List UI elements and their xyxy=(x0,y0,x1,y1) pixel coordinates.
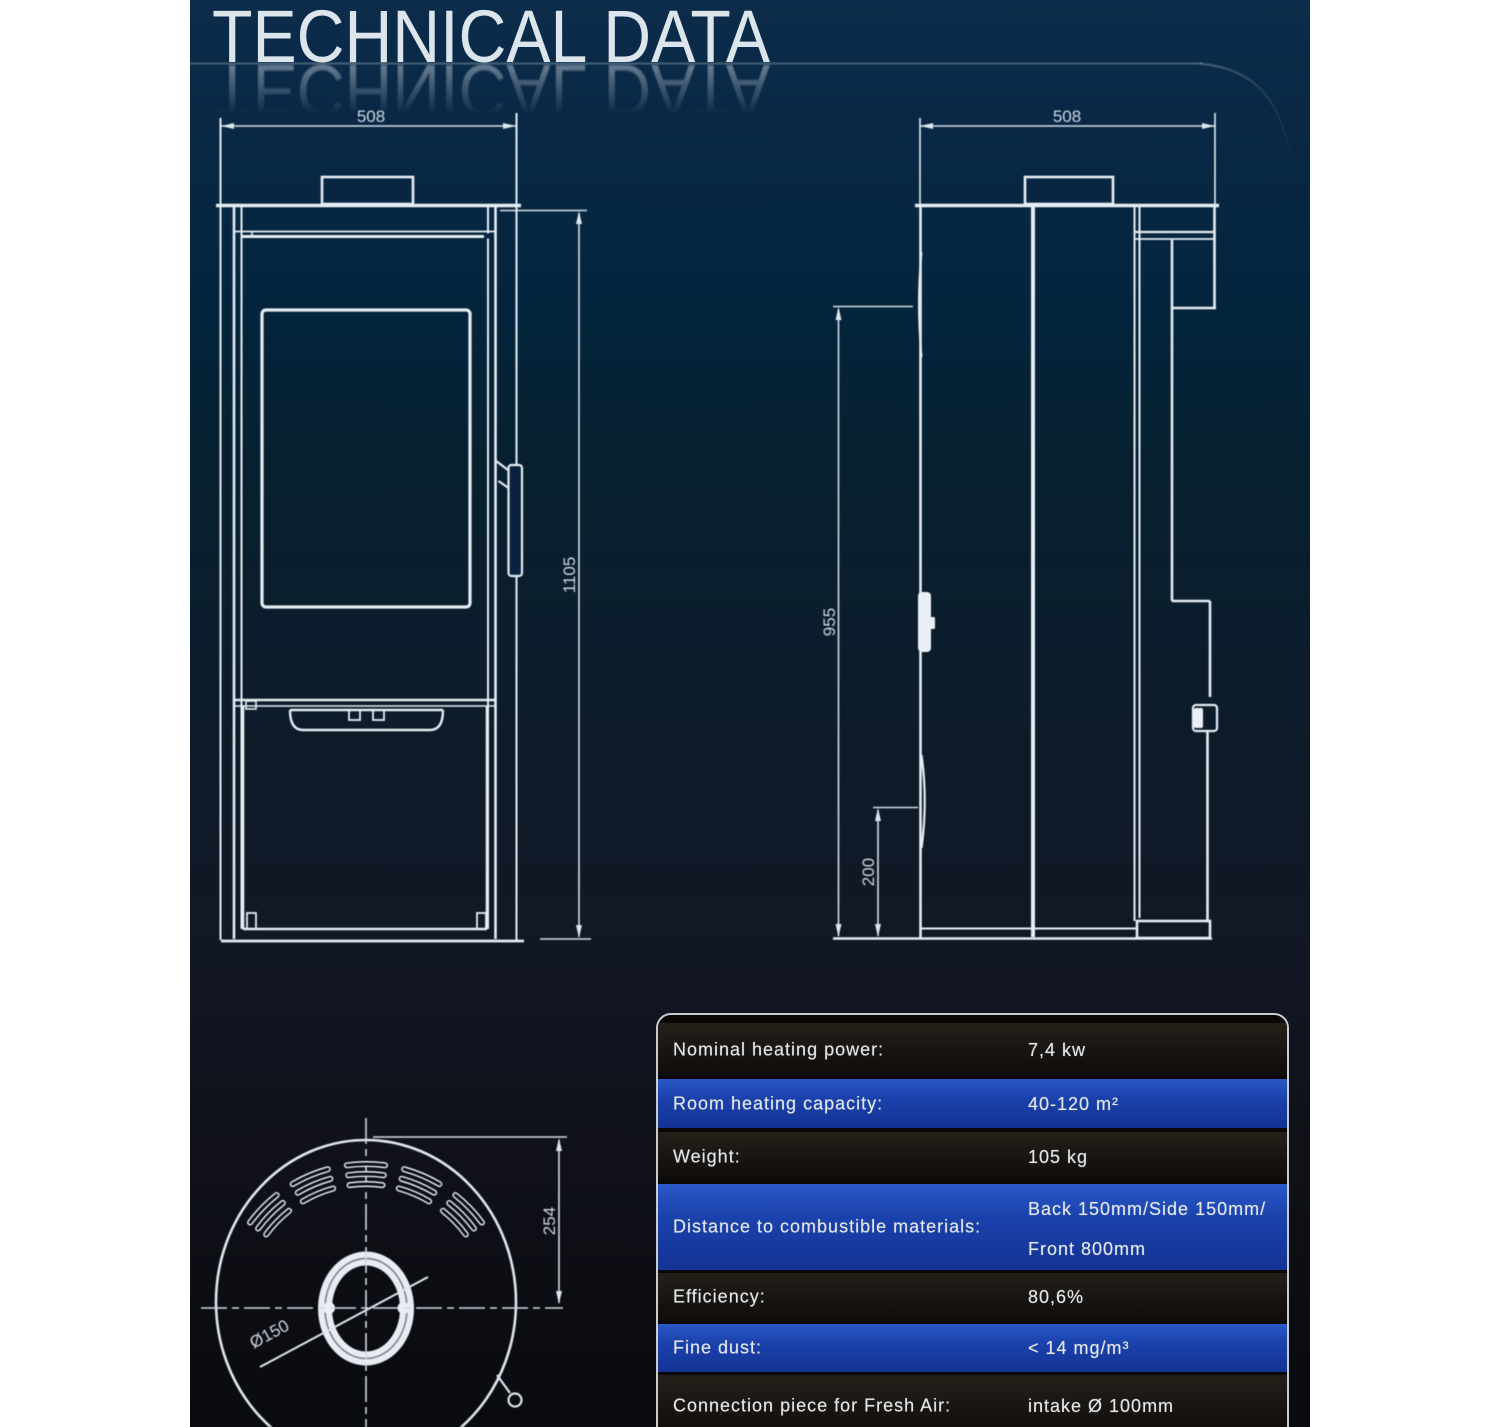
svg-text:1105: 1105 xyxy=(560,557,579,594)
svg-text:200: 200 xyxy=(859,858,878,886)
svg-text:254: 254 xyxy=(540,1207,559,1235)
svg-text:955: 955 xyxy=(820,608,839,636)
svg-text:508: 508 xyxy=(1053,107,1081,126)
svg-text:Ø150: Ø150 xyxy=(247,1316,293,1352)
